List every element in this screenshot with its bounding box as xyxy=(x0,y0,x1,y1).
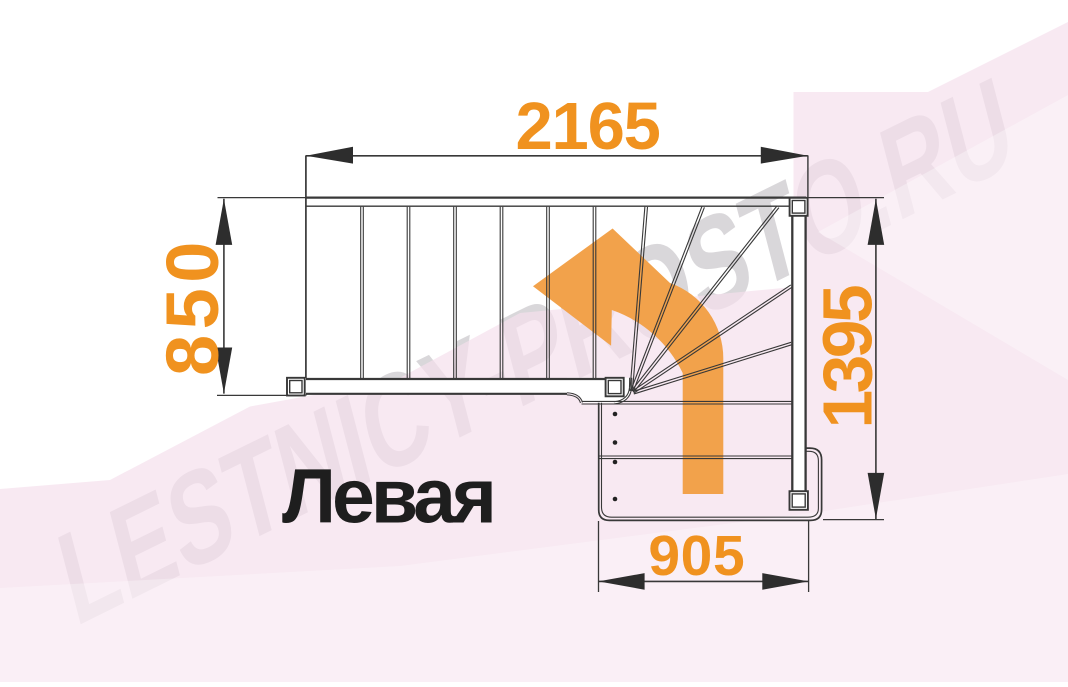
svg-text:2165: 2165 xyxy=(515,89,659,164)
svg-text:1395: 1395 xyxy=(809,286,887,428)
svg-text:Левая: Левая xyxy=(282,453,493,539)
svg-text:905: 905 xyxy=(648,524,745,588)
svg-text:850: 850 xyxy=(151,236,234,376)
